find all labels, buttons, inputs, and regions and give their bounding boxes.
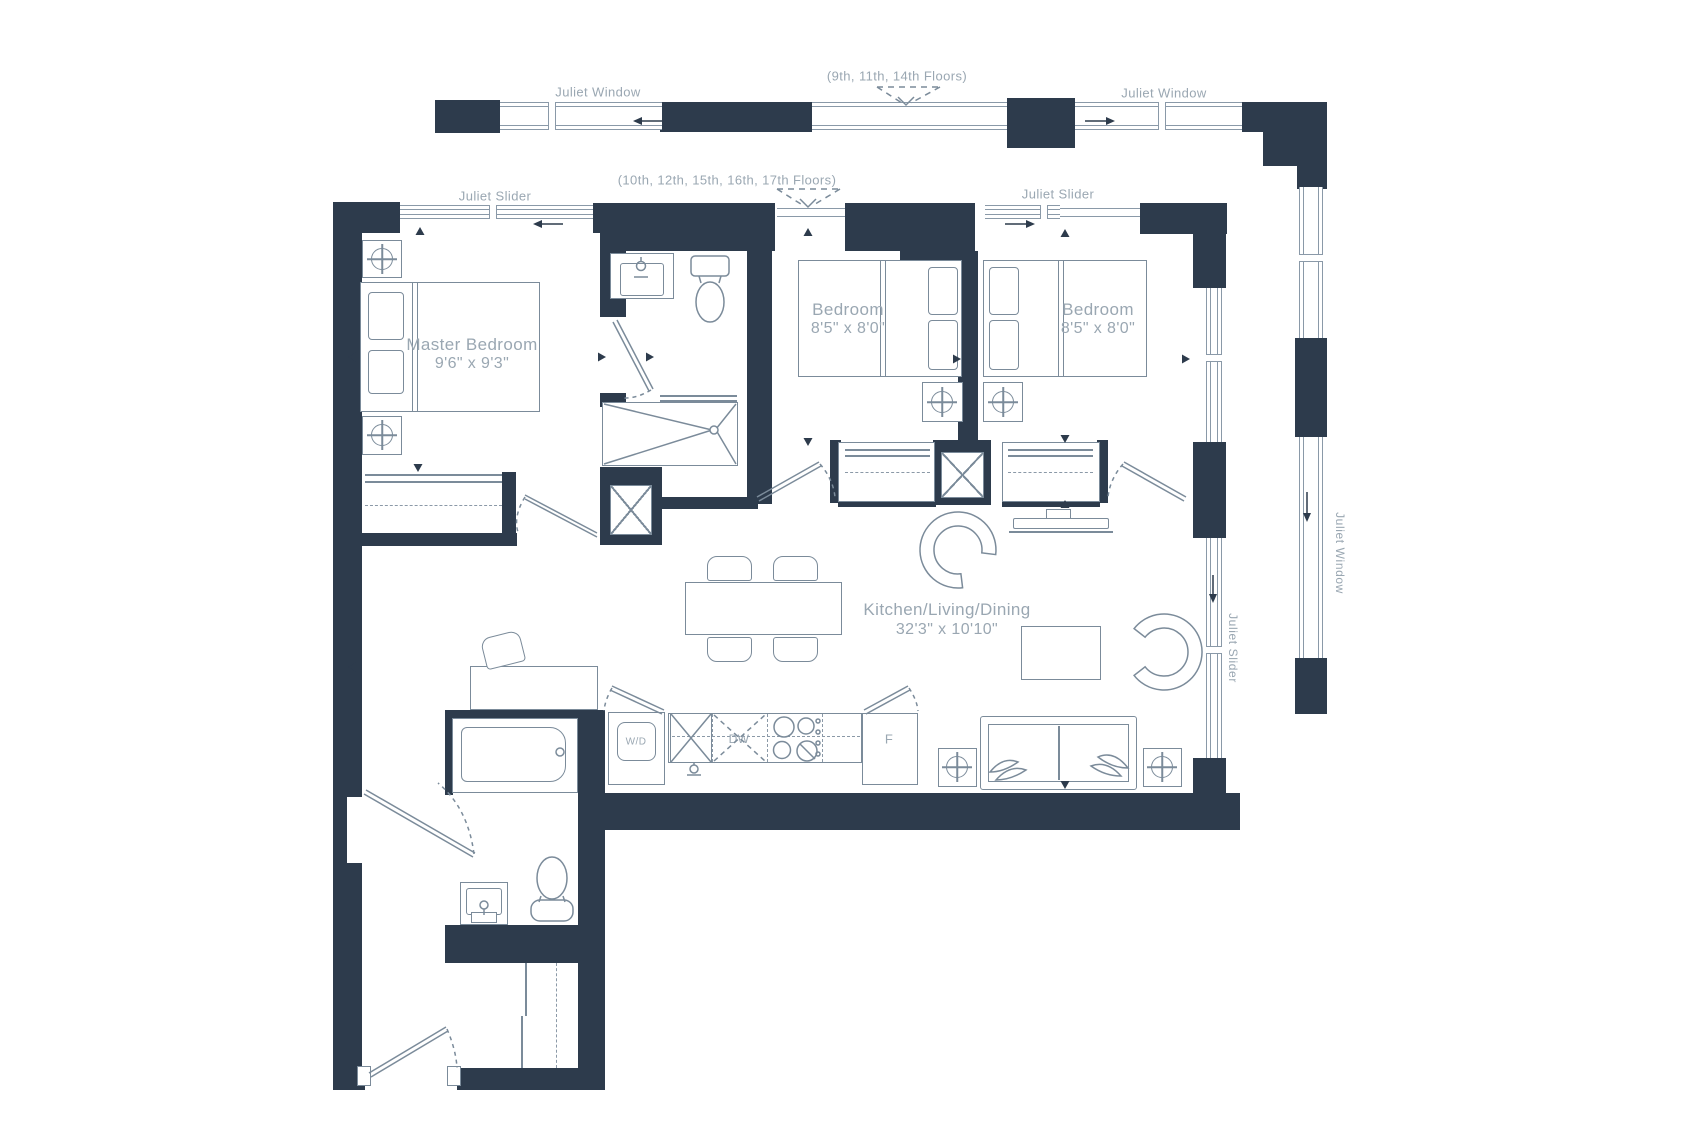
kitchen-living-dining-dims: 32'3" x 10'10"	[896, 621, 998, 639]
window-band	[812, 102, 1007, 130]
divider-line	[525, 963, 527, 1016]
shelf-line	[1008, 449, 1093, 451]
kitchen-sink	[670, 713, 712, 763]
wall-segment	[578, 710, 605, 1090]
wall-segment	[502, 472, 516, 533]
wall-segment	[1193, 442, 1226, 538]
desk-chair	[480, 630, 527, 671]
wall-segment	[333, 202, 362, 1090]
wall-segment	[333, 202, 400, 233]
bay-marker-lower	[777, 189, 840, 206]
window-band	[985, 205, 1060, 219]
wall-segment	[660, 102, 812, 132]
toilet-1	[691, 256, 729, 322]
bathroom-2-door	[364, 783, 475, 857]
closet-rod-line	[845, 472, 930, 473]
closet-rod-line	[672, 736, 860, 737]
wall-segment	[1295, 658, 1327, 714]
fridge-box	[862, 713, 918, 785]
master-bedroom-door	[517, 495, 597, 537]
divider-line	[521, 1016, 523, 1068]
dashed-divider	[556, 963, 557, 1068]
dining-chair	[773, 637, 818, 662]
pillow	[928, 320, 958, 370]
divider-line	[1058, 726, 1060, 780]
bay-marker-upper	[877, 87, 940, 103]
fridge-door-swing	[864, 686, 918, 714]
fixtures-overlay	[0, 0, 1700, 1134]
closet-rod-line	[365, 505, 502, 506]
closet-rod-line	[1008, 472, 1093, 473]
juliet-window-label-right: Juliet Window	[1333, 512, 1347, 594]
wall-segment	[333, 533, 517, 546]
window-mullion	[1158, 102, 1166, 130]
sink-basin	[466, 888, 502, 915]
table-lamp	[1151, 756, 1173, 778]
floors-note-upper: (9th, 11th, 14th Floors)	[827, 70, 967, 85]
window-mullion	[489, 205, 497, 219]
window-band	[1299, 187, 1323, 338]
table-lamp	[371, 248, 393, 270]
wall-segment	[1295, 338, 1327, 437]
door-post	[447, 1066, 461, 1086]
pillow	[989, 320, 1019, 370]
bedroom-b-label: Bedroom	[1062, 300, 1134, 320]
window-mullion	[1206, 646, 1222, 654]
dashed-divider	[822, 714, 823, 762]
window-band	[1206, 288, 1222, 442]
wall-segment	[1297, 164, 1327, 189]
wall-segment	[1242, 102, 1327, 132]
door-opening	[365, 1068, 457, 1090]
shelf-line	[365, 474, 502, 476]
table-lamp	[992, 391, 1014, 413]
wall-segment	[747, 228, 772, 504]
dishwasher-label: DW	[729, 733, 750, 747]
bathroom-1-door	[613, 320, 653, 398]
bay-marker-lower-v	[800, 199, 816, 207]
wall-segment	[1140, 203, 1227, 234]
door-post	[357, 1066, 371, 1086]
bedroom-a-label: Bedroom	[812, 300, 884, 320]
desk	[470, 666, 598, 710]
wall-segment	[1193, 758, 1226, 796]
fridge-label: F	[885, 733, 893, 748]
juliet-slider-label-master: Juliet Slider	[459, 190, 531, 205]
bedroom-b-dims: 8'5" x 8'0"	[1061, 320, 1135, 338]
shelf-line	[1009, 531, 1113, 533]
shelf-line	[845, 455, 930, 457]
dining-chair	[773, 556, 818, 581]
wall-segment	[1263, 130, 1327, 166]
table-lamp	[931, 391, 953, 413]
shelf-line	[365, 481, 502, 483]
dining-chair	[707, 556, 752, 581]
window-band	[1060, 208, 1140, 217]
shelf-line	[1008, 455, 1093, 457]
floors-note-lower: (10th, 12th, 15th, 16th, 17th Floors)	[618, 174, 837, 189]
juliet-slider-label-living: Juliet Slider	[1226, 613, 1240, 683]
pillow	[368, 292, 404, 340]
master-bedroom-label: Master Bedroom	[406, 335, 537, 355]
washer-closet-door	[604, 686, 664, 714]
sink-basin	[620, 263, 664, 296]
shelf-line	[660, 400, 737, 402]
wall-segment	[445, 925, 578, 963]
shelf-line	[845, 449, 930, 451]
kitchen-living-dining-label: Kitchen/Living/Dining	[863, 600, 1030, 620]
tv-screen	[1013, 518, 1109, 529]
juliet-slider-label-bedroom: Juliet Slider	[1022, 188, 1094, 203]
toilet-2	[531, 857, 573, 921]
window-mullion	[548, 102, 556, 130]
dashed-divider	[767, 714, 768, 762]
wall-segment	[435, 100, 500, 133]
master-bedroom-dims: 9'6" x 9'3"	[435, 355, 509, 373]
dining-table	[685, 582, 842, 635]
wall-segment	[1007, 98, 1075, 148]
window-band	[1299, 437, 1323, 658]
pillow	[928, 267, 958, 315]
wall-segment	[1193, 234, 1226, 288]
floor-plan: (9th, 11th, 14th Floors) (10th, 12th, 15…	[0, 0, 1700, 1134]
bedroom-b-door	[1108, 462, 1186, 501]
dashed-divider	[712, 714, 713, 762]
window-mullion	[1206, 354, 1222, 362]
table-lamp	[946, 756, 968, 778]
door-opening	[347, 797, 362, 863]
shower-pan	[602, 402, 738, 466]
pillow	[368, 350, 404, 394]
shelf-line	[660, 395, 737, 397]
window-mullion	[1299, 254, 1323, 262]
coffee-table	[1021, 626, 1101, 680]
window-mullion	[1040, 205, 1048, 219]
bedroom-a-dims: 8'5" x 8'0"	[811, 320, 885, 338]
dining-chair	[707, 637, 752, 662]
sink-pedestal	[471, 912, 497, 923]
window-band	[500, 102, 662, 130]
juliet-window-label-top-right: Juliet Window	[1121, 87, 1206, 102]
wall-segment	[600, 793, 1240, 830]
pillow	[989, 267, 1019, 315]
armchair-round-right	[1134, 614, 1202, 690]
wall-segment	[845, 203, 975, 251]
window-band	[777, 208, 845, 217]
shaft	[941, 452, 984, 498]
bathtub-basin	[461, 727, 566, 782]
washer-dryer-label: W/D	[626, 736, 647, 748]
table-lamp	[371, 424, 393, 446]
shaft	[610, 485, 652, 535]
armchair-round-left	[920, 512, 996, 588]
wall-segment	[660, 497, 758, 509]
juliet-window-label-top-left: Juliet Window	[555, 86, 640, 101]
